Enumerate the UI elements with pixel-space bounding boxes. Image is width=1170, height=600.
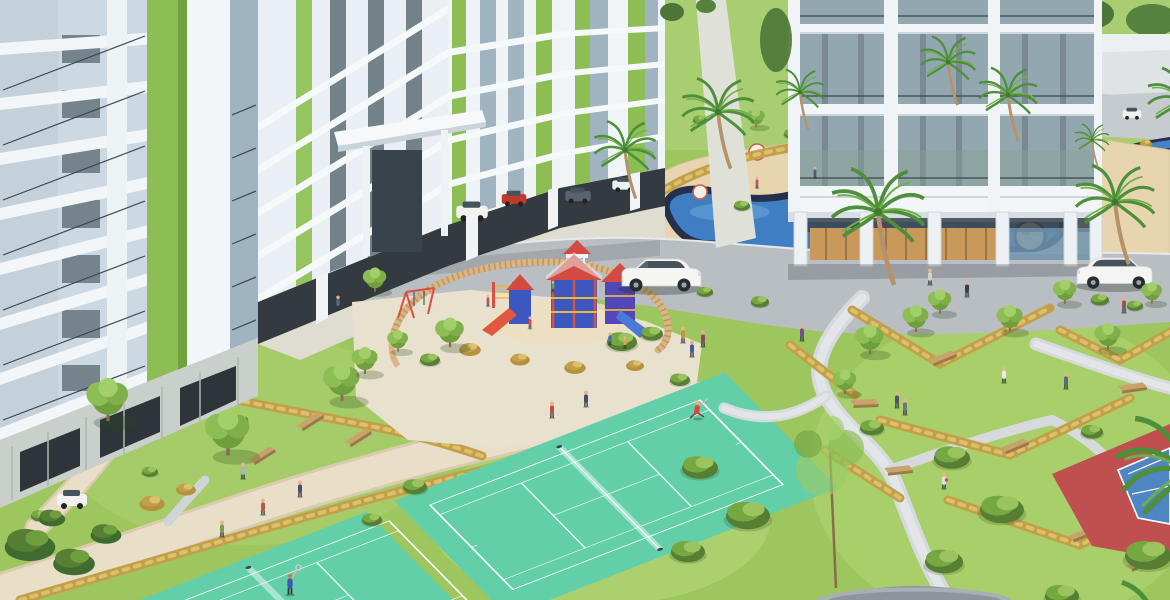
scene-canvas: Aerial architectural rendering of a resi… (0, 0, 1170, 600)
rendered-scene: Aerial architectural rendering of a resi… (0, 0, 1170, 600)
right-tower-building (760, 0, 1102, 280)
clubhouse-glass (788, 212, 1102, 260)
